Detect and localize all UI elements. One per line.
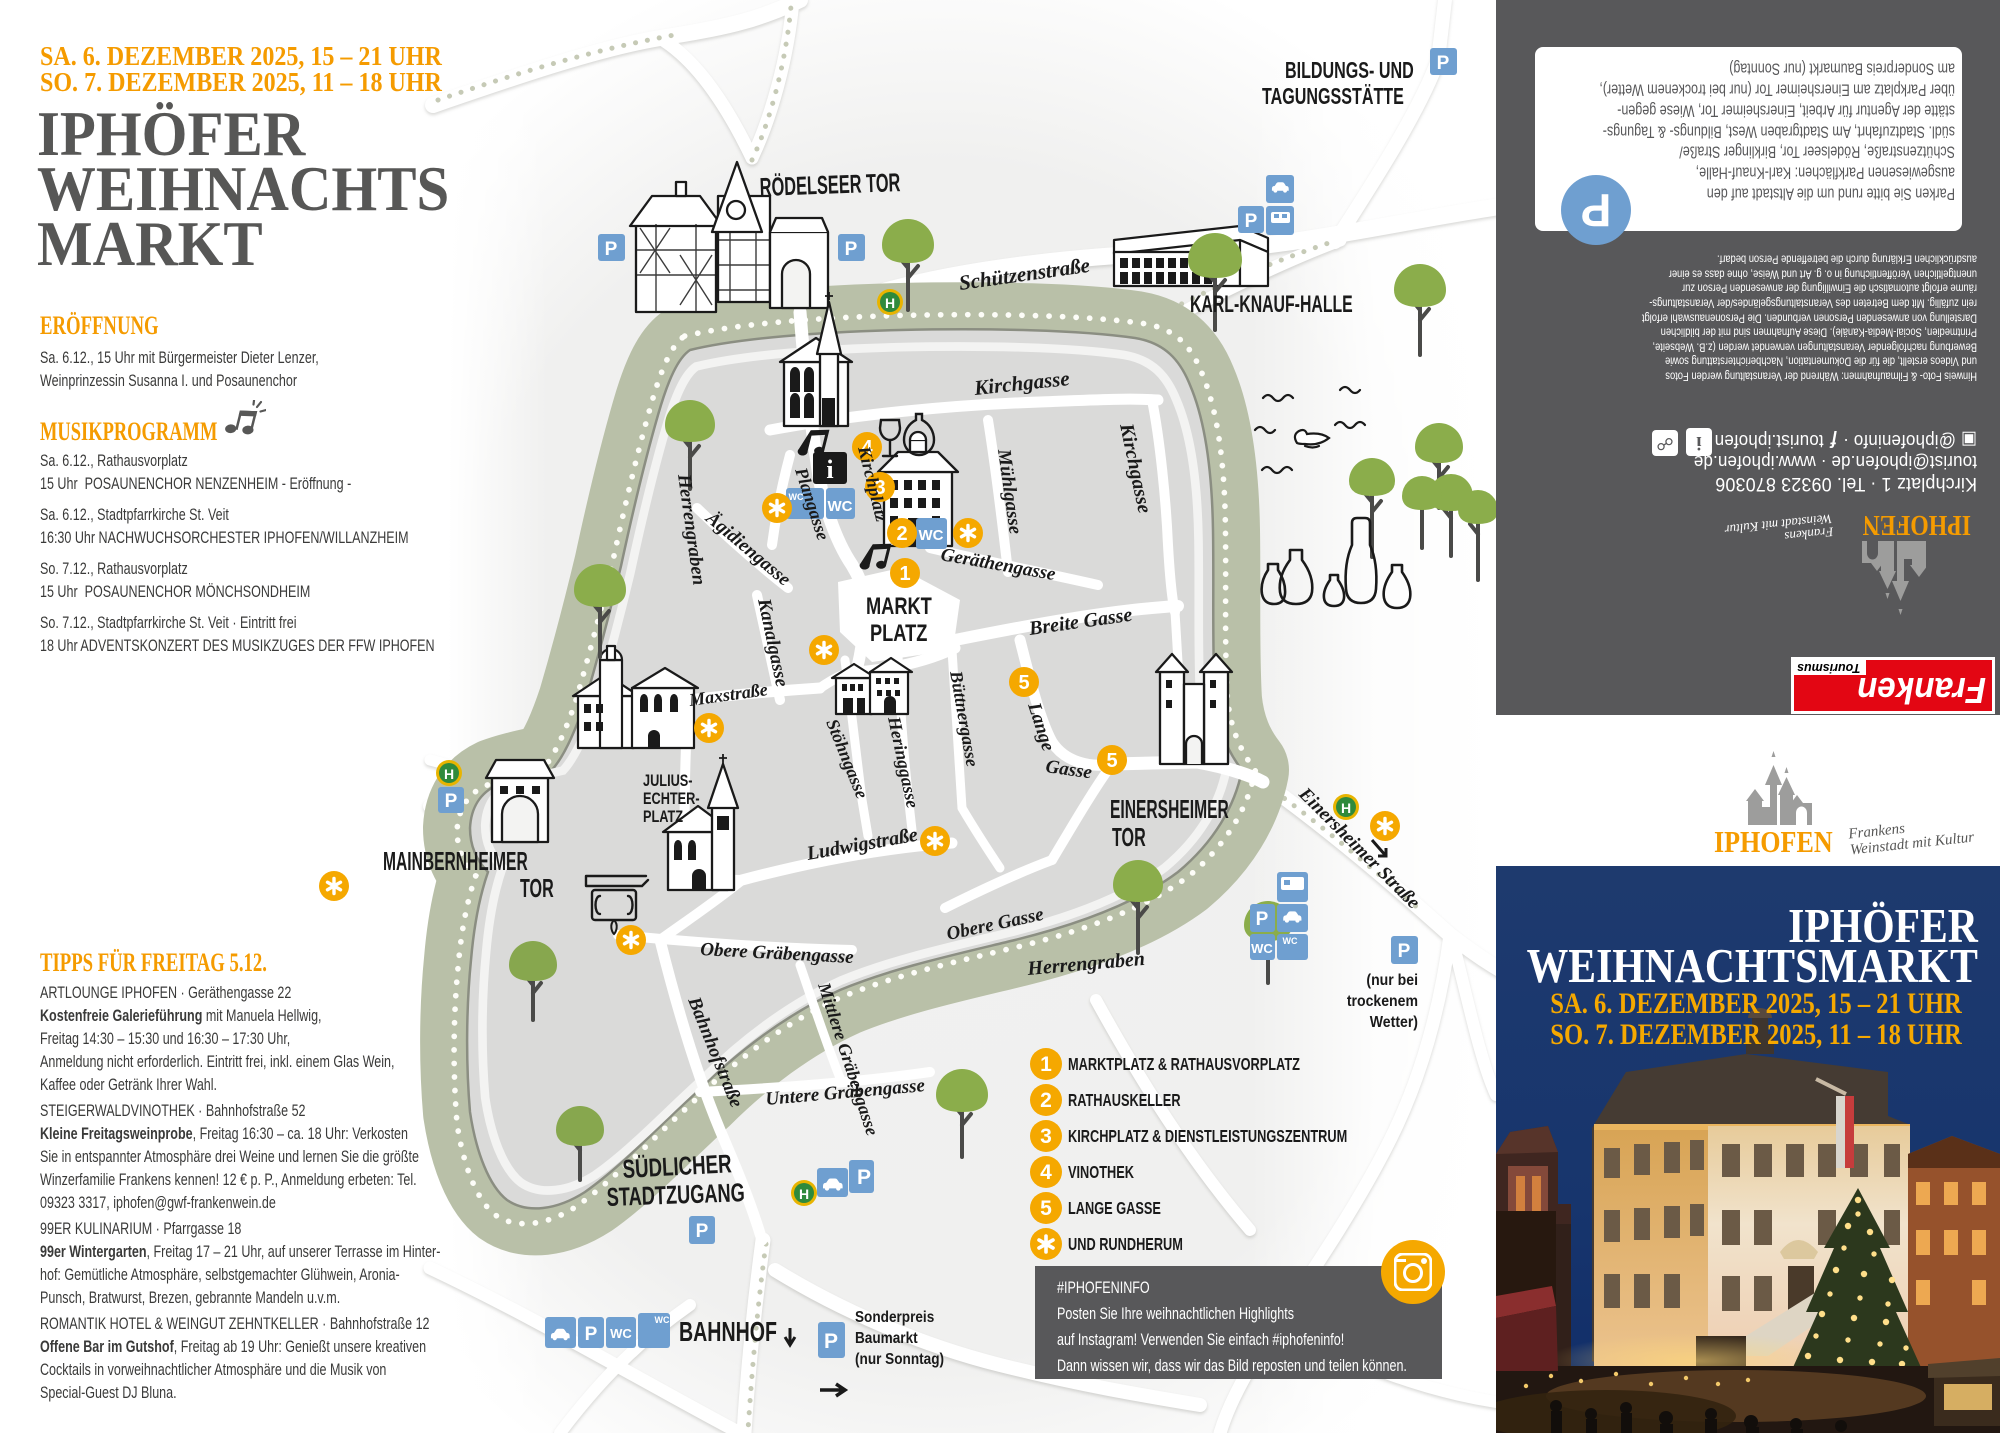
svg-text:P: P bbox=[1437, 53, 1450, 74]
svg-text:MAINBERNHEIMER: MAINBERNHEIMER bbox=[383, 847, 528, 876]
svg-text:ECHTER-: ECHTER- bbox=[643, 789, 700, 808]
svg-text:RATHAUSKELLER: RATHAUSKELLER bbox=[1068, 1091, 1181, 1110]
svg-text:UND RUNDHERUM: UND RUNDHERUM bbox=[1068, 1235, 1183, 1254]
svg-text:JULIUS-: JULIUS- bbox=[643, 771, 693, 790]
svg-text:EINERSHEIMER: EINERSHEIMER bbox=[1110, 795, 1229, 824]
svg-text:TOR: TOR bbox=[520, 873, 554, 903]
svg-text:P: P bbox=[845, 239, 858, 260]
svg-text:KARL-KNAUF-HALLE: KARL-KNAUF-HALLE bbox=[1190, 292, 1353, 318]
svg-text:MARKT: MARKT bbox=[866, 593, 932, 620]
svg-text:trockenem: trockenem bbox=[1347, 992, 1418, 1010]
svg-text:TAGUNGSSTÄTTE: TAGUNGSSTÄTTE bbox=[1262, 83, 1404, 110]
svg-text:P: P bbox=[605, 239, 618, 260]
svg-text:P: P bbox=[696, 1221, 709, 1242]
svg-text:RÖDELSEER TOR: RÖDELSEER TOR bbox=[759, 167, 901, 202]
svg-text:BILDUNGS- UND: BILDUNGS- UND bbox=[1285, 58, 1414, 83]
svg-text:BAHNHOF: BAHNHOF bbox=[679, 1317, 777, 1348]
svg-text:P: P bbox=[824, 1330, 838, 1353]
svg-text:P: P bbox=[1256, 909, 1269, 930]
svg-text:4: 4 bbox=[1040, 1161, 1052, 1184]
svg-text:P: P bbox=[445, 791, 458, 812]
svg-text:Wetter): Wetter) bbox=[1370, 1013, 1418, 1031]
svg-text:WC: WC bbox=[1283, 936, 1298, 946]
svg-text:(nur Sonntag): (nur Sonntag) bbox=[855, 1351, 944, 1368]
svg-text:H: H bbox=[1341, 800, 1351, 816]
svg-text:WC: WC bbox=[1251, 941, 1273, 956]
svg-text:P: P bbox=[585, 1324, 598, 1345]
svg-text:TOR: TOR bbox=[1112, 822, 1146, 852]
svg-text:WC: WC bbox=[610, 1326, 632, 1341]
svg-text:WC: WC bbox=[828, 498, 853, 515]
svg-text:H: H bbox=[444, 766, 454, 782]
svg-text:PLATZ: PLATZ bbox=[870, 620, 927, 647]
svg-text:VINOTHEK: VINOTHEK bbox=[1068, 1163, 1134, 1182]
svg-text:i: i bbox=[826, 455, 833, 484]
svg-text:Sonderpreis: Sonderpreis bbox=[855, 1309, 934, 1326]
svg-text:WC: WC bbox=[919, 527, 944, 544]
svg-text:P: P bbox=[1398, 941, 1411, 962]
svg-text:2: 2 bbox=[896, 523, 907, 545]
svg-text:H: H bbox=[885, 295, 895, 311]
svg-text:KIRCHPLATZ & DIENSTLEISTUNGSZE: KIRCHPLATZ & DIENSTLEISTUNGSZENTRUM bbox=[1068, 1127, 1347, 1146]
svg-text:P: P bbox=[1245, 211, 1258, 232]
svg-text:P: P bbox=[857, 1166, 871, 1189]
svg-text:STADTZUGANG: STADTZUGANG bbox=[606, 1178, 745, 1212]
svg-text:1: 1 bbox=[899, 563, 910, 585]
svg-text:H: H bbox=[799, 1186, 809, 1202]
svg-text:(nur bei: (nur bei bbox=[1366, 971, 1418, 989]
svg-text:2: 2 bbox=[1040, 1089, 1052, 1112]
svg-text:1: 1 bbox=[1040, 1053, 1052, 1076]
svg-text:MARKTPLATZ & RATHAUSVORPLATZ: MARKTPLATZ & RATHAUSVORPLATZ bbox=[1068, 1055, 1300, 1074]
svg-text:WC: WC bbox=[655, 1315, 670, 1325]
svg-text:5: 5 bbox=[1106, 750, 1117, 772]
svg-text:PLATZ: PLATZ bbox=[643, 807, 683, 826]
svg-text:5: 5 bbox=[1018, 672, 1029, 694]
svg-text:Baumarkt: Baumarkt bbox=[855, 1330, 918, 1347]
svg-text:LANGE GASSE: LANGE GASSE bbox=[1068, 1199, 1161, 1218]
svg-text:3: 3 bbox=[1040, 1125, 1052, 1148]
svg-text:5: 5 bbox=[1040, 1197, 1052, 1220]
